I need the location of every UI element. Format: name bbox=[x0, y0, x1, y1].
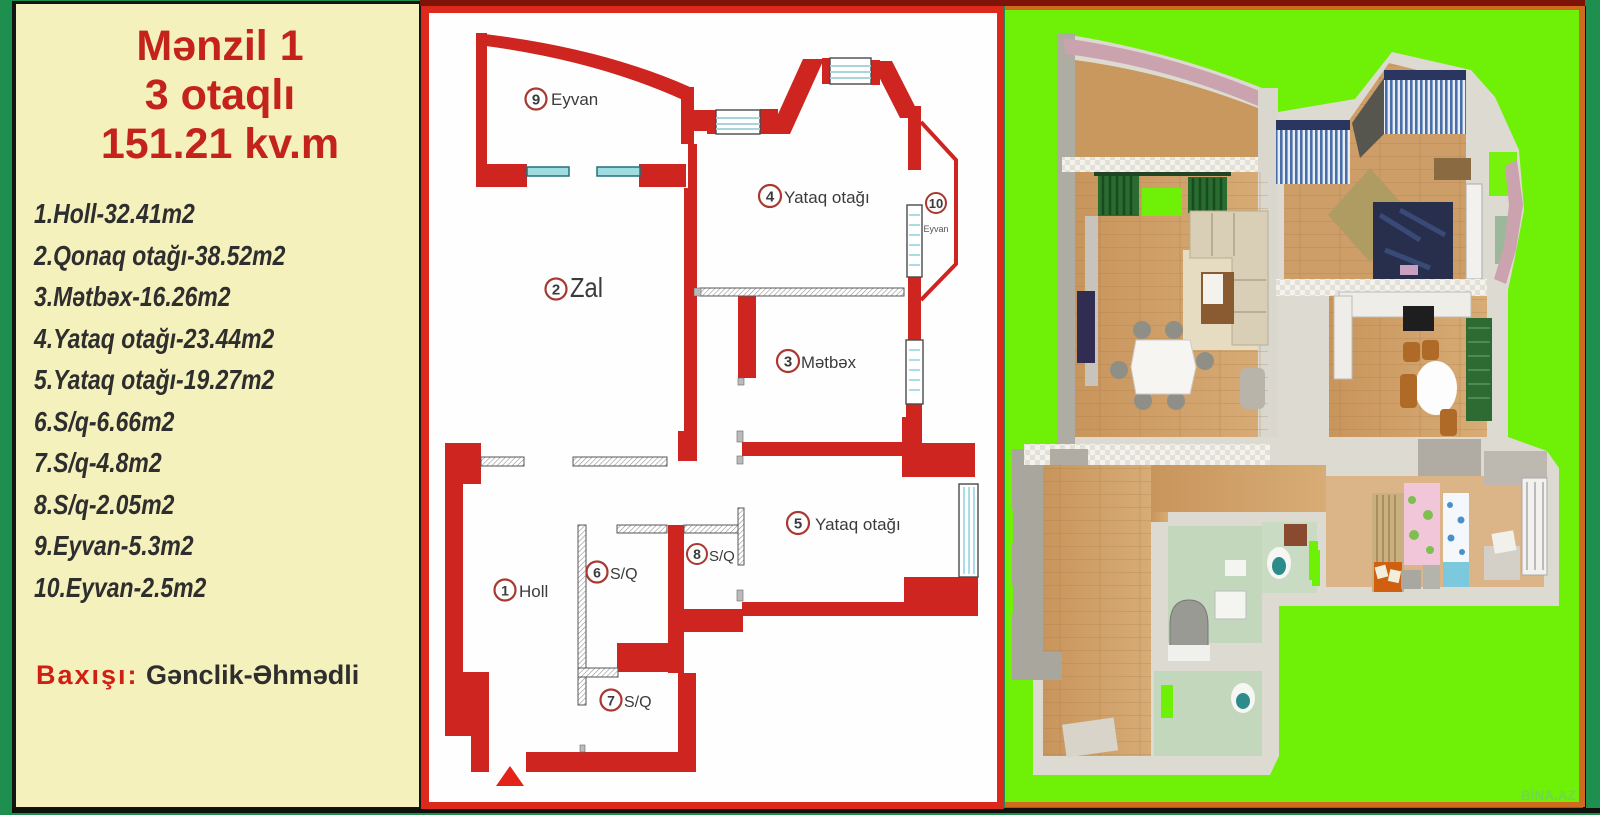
svg-text:Eyvan: Eyvan bbox=[923, 224, 948, 234]
svg-text:S/Q: S/Q bbox=[610, 566, 638, 583]
svg-text:6: 6 bbox=[593, 565, 601, 581]
svg-text:1: 1 bbox=[501, 583, 509, 599]
svg-text:BİNA.AZ: BİNA.AZ bbox=[1521, 788, 1576, 803]
svg-text:9: 9 bbox=[532, 92, 540, 109]
svg-text:Zal: Zal bbox=[570, 272, 603, 303]
svg-text:2: 2 bbox=[552, 282, 560, 299]
svg-text:Holl: Holl bbox=[519, 582, 548, 601]
svg-text:5: 5 bbox=[794, 516, 802, 533]
svg-text:Yataq otağı: Yataq otağı bbox=[815, 515, 901, 534]
svg-text:Mətbəx: Mətbəx bbox=[801, 353, 856, 372]
svg-text:S/Q: S/Q bbox=[624, 694, 652, 711]
svg-text:3: 3 bbox=[784, 354, 792, 371]
svg-text:8: 8 bbox=[693, 546, 701, 562]
svg-text:S/Q: S/Q bbox=[709, 548, 735, 565]
svg-text:Yataq otağı: Yataq otağı bbox=[784, 188, 870, 207]
svg-text:7: 7 bbox=[607, 693, 615, 709]
svg-text:4: 4 bbox=[766, 189, 775, 206]
svg-text:10: 10 bbox=[929, 196, 943, 211]
svg-text:Eyvan: Eyvan bbox=[551, 90, 598, 109]
